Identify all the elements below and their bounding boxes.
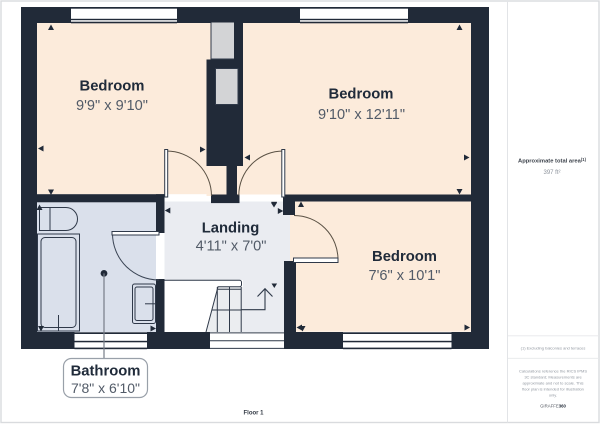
svg-text:3C standard; Measurements are: 3C standard; Measurements are xyxy=(524,374,582,379)
svg-text:only.: only. xyxy=(549,393,557,398)
svg-text:397 ft²: 397 ft² xyxy=(543,170,560,176)
svg-text:7'8" x 6'10": 7'8" x 6'10" xyxy=(71,380,140,396)
svg-text:floor plan is intended for ill: floor plan is intended for illustration xyxy=(522,387,584,392)
svg-text:Floor 1: Floor 1 xyxy=(243,411,264,417)
svg-text:approximate and not to scale.: approximate and not to scale. This xyxy=(522,381,583,386)
svg-text:Approximate total area(1): Approximate total area(1) xyxy=(518,157,587,165)
svg-text:9'9" x 9'10": 9'9" x 9'10" xyxy=(76,98,148,114)
svg-text:Bedroom: Bedroom xyxy=(372,249,437,265)
svg-text:9'10" x 12'11": 9'10" x 12'11" xyxy=(318,107,405,123)
svg-text:Bedroom: Bedroom xyxy=(329,87,394,103)
svg-text:7'6" x 10'1": 7'6" x 10'1" xyxy=(369,268,441,284)
svg-text:Landing: Landing xyxy=(202,221,260,237)
svg-text:4'11" x 7'0": 4'11" x 7'0" xyxy=(196,239,267,255)
svg-text:Bathroom: Bathroom xyxy=(71,364,141,380)
svg-text:GIRAFFE360: GIRAFFE360 xyxy=(540,403,566,408)
svg-text:Bedroom: Bedroom xyxy=(80,79,145,95)
svg-text:(1) Excluding balconies and te: (1) Excluding balconies and terraces xyxy=(521,346,586,351)
svg-text:Calculations reference the RIC: Calculations reference the RICS IPMS xyxy=(519,368,587,373)
